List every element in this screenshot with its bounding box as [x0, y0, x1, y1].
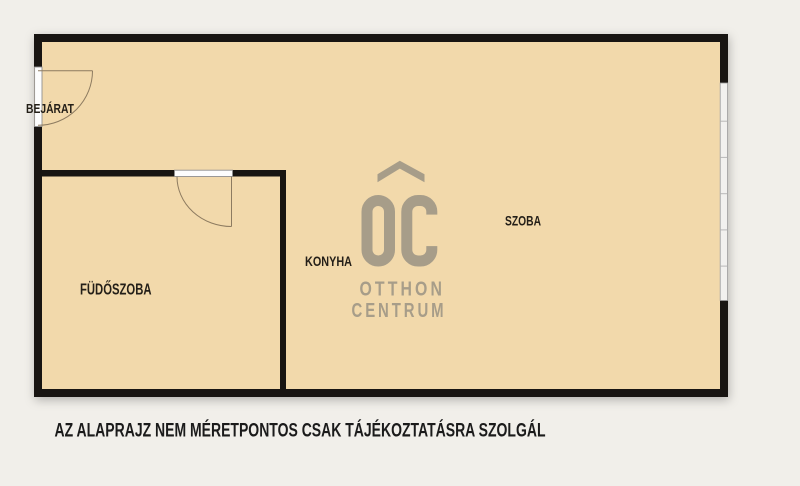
svg-text:FÜDŐSZOBA: FÜDŐSZOBA [80, 281, 152, 299]
svg-text:BEJÁRAT: BEJÁRAT [26, 101, 74, 116]
svg-text:KONYHA: KONYHA [305, 254, 352, 269]
svg-text:SZOBA: SZOBA [505, 214, 541, 229]
svg-text:CENTRUM: CENTRUM [352, 299, 447, 322]
svg-text:OTTHON: OTTHON [360, 278, 446, 301]
svg-text:AZ ALAPRAJZ NEM MÉRETPONTOS CS: AZ ALAPRAJZ NEM MÉRETPONTOS CSAK TÁJÉKOZ… [55, 420, 546, 442]
